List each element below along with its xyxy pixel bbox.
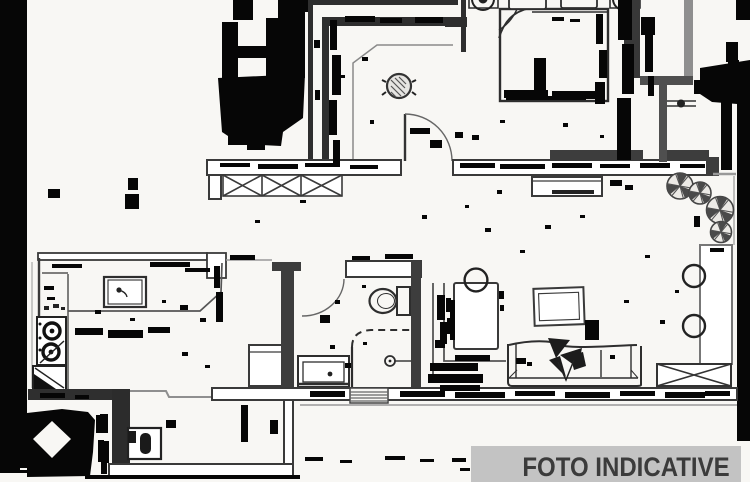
svg-text:FOTO INDICATIVE: FOTO INDICATIVE xyxy=(522,453,729,482)
